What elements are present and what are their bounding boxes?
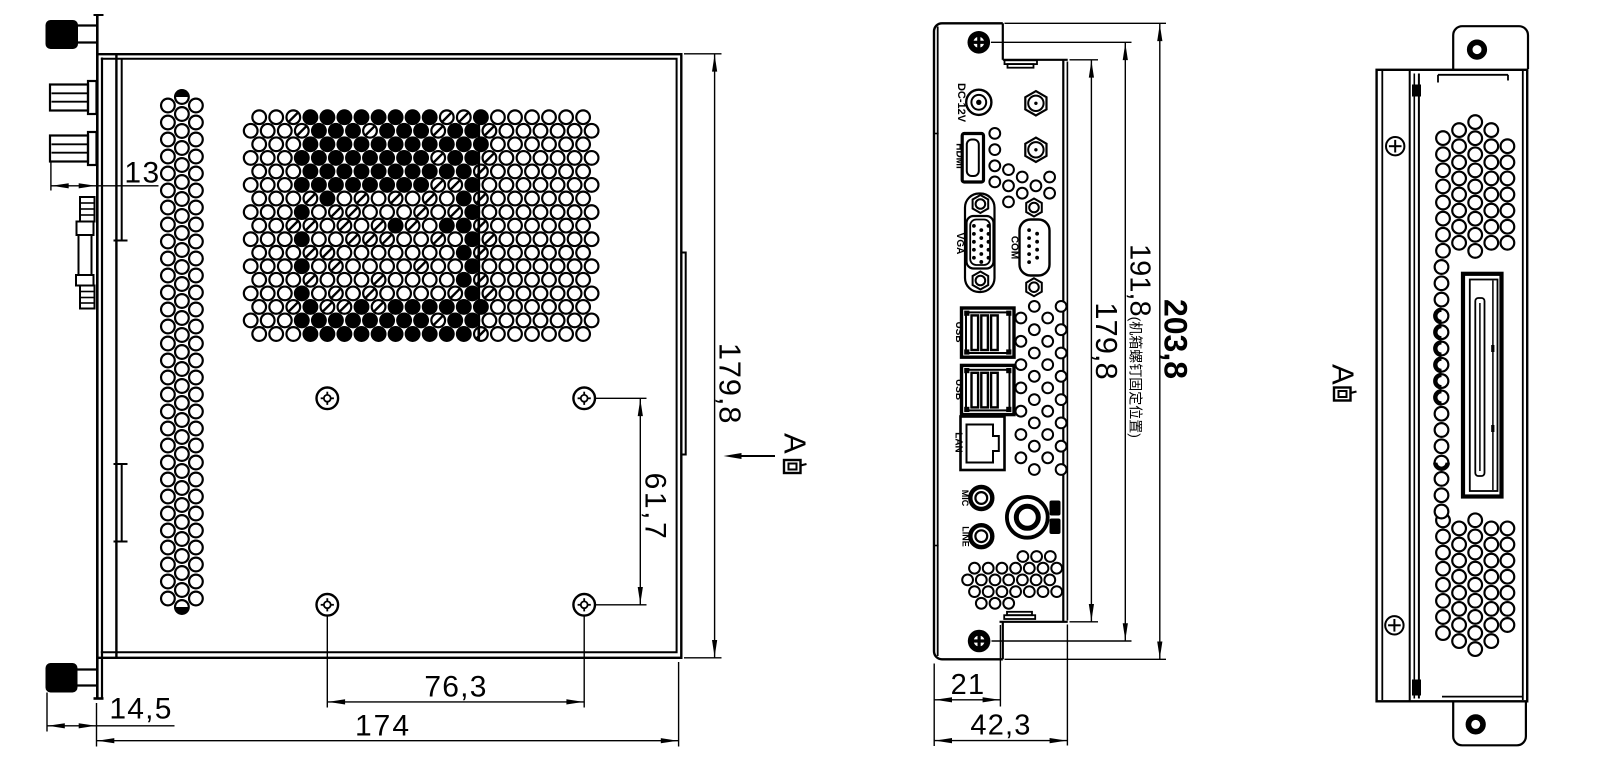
svg-text:179,8: 179,8 [713,343,748,425]
svg-text:COM: COM [1009,236,1020,259]
svg-text:VGA: VGA [954,233,965,255]
svg-text:14,5: 14,5 [109,693,172,726]
svg-text:13: 13 [124,157,160,190]
svg-text:A: A [1326,364,1361,385]
svg-text:A: A [778,433,813,454]
svg-text:LAN: LAN [953,432,964,453]
svg-text:61,7: 61,7 [638,473,671,542]
svg-text:179,8: 179,8 [1089,302,1124,380]
svg-text:203,8: 203,8 [1158,299,1194,379]
svg-text:21: 21 [951,669,986,701]
svg-text:174: 174 [355,710,411,743]
svg-text:42,3: 42,3 [970,710,1031,742]
svg-text:76,3: 76,3 [424,671,487,704]
